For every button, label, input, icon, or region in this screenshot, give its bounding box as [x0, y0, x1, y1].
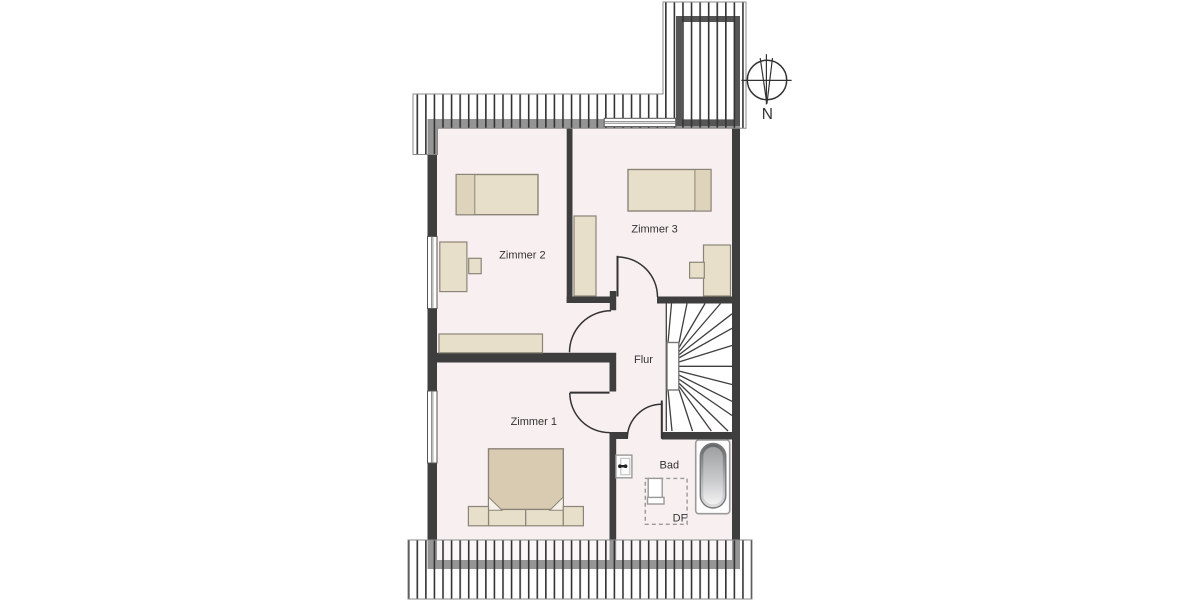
svg-text:Flur: Flur [634, 354, 653, 366]
svg-text:Zimmer 1: Zimmer 1 [511, 416, 557, 428]
svg-text:Zimmer 2: Zimmer 2 [499, 250, 545, 262]
svg-text:DF: DF [673, 513, 688, 525]
svg-text:Bad: Bad [660, 460, 680, 472]
svg-text:Zimmer 3: Zimmer 3 [631, 224, 677, 236]
svg-text:N: N [762, 106, 773, 123]
